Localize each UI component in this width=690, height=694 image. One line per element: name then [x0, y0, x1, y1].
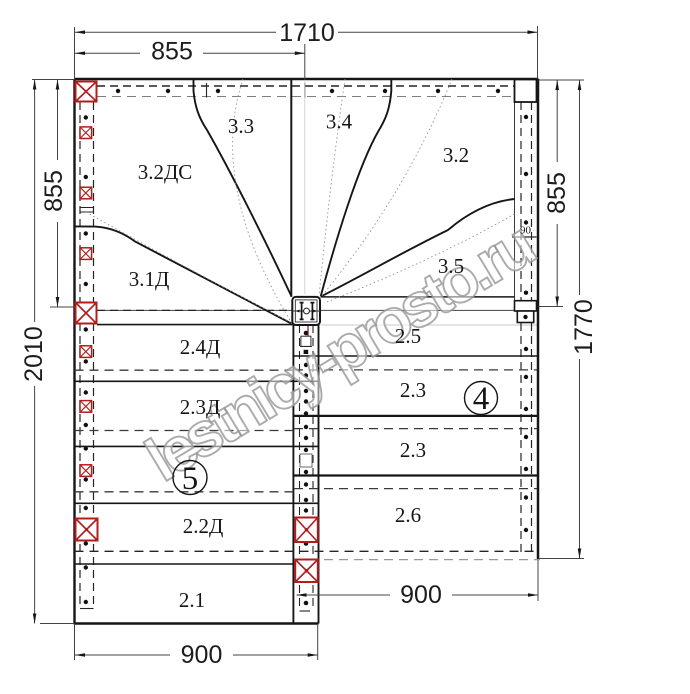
svg-text:855: 855 [151, 38, 193, 66]
svg-text:3.1Д: 3.1Д [129, 267, 170, 291]
svg-text:2.3Д: 2.3Д [180, 395, 221, 419]
svg-text:855: 855 [40, 170, 68, 212]
svg-text:2.2Д: 2.2Д [183, 514, 224, 538]
svg-text:855: 855 [543, 172, 571, 214]
svg-text:3.4: 3.4 [326, 110, 353, 134]
svg-text:900: 900 [400, 581, 442, 609]
svg-text:5: 5 [182, 461, 199, 497]
svg-text:90: 90 [520, 225, 532, 237]
svg-text:2.1: 2.1 [179, 588, 205, 612]
svg-text:2.6: 2.6 [395, 503, 421, 527]
svg-text:2.3: 2.3 [400, 378, 426, 402]
svg-text:2.4Д: 2.4Д [180, 335, 221, 359]
svg-text:3.5: 3.5 [438, 254, 464, 278]
svg-text:4: 4 [473, 381, 490, 417]
svg-text:1710: 1710 [279, 19, 335, 47]
svg-text:2.5: 2.5 [395, 324, 421, 348]
svg-text:3.3: 3.3 [228, 114, 254, 138]
svg-text:3.2ДС: 3.2ДС [138, 160, 193, 184]
svg-text:900: 900 [181, 641, 223, 669]
svg-text:1770: 1770 [570, 299, 598, 355]
svg-text:2.3: 2.3 [400, 438, 426, 462]
svg-text:3.2: 3.2 [443, 143, 469, 167]
svg-text:2010: 2010 [20, 326, 48, 382]
